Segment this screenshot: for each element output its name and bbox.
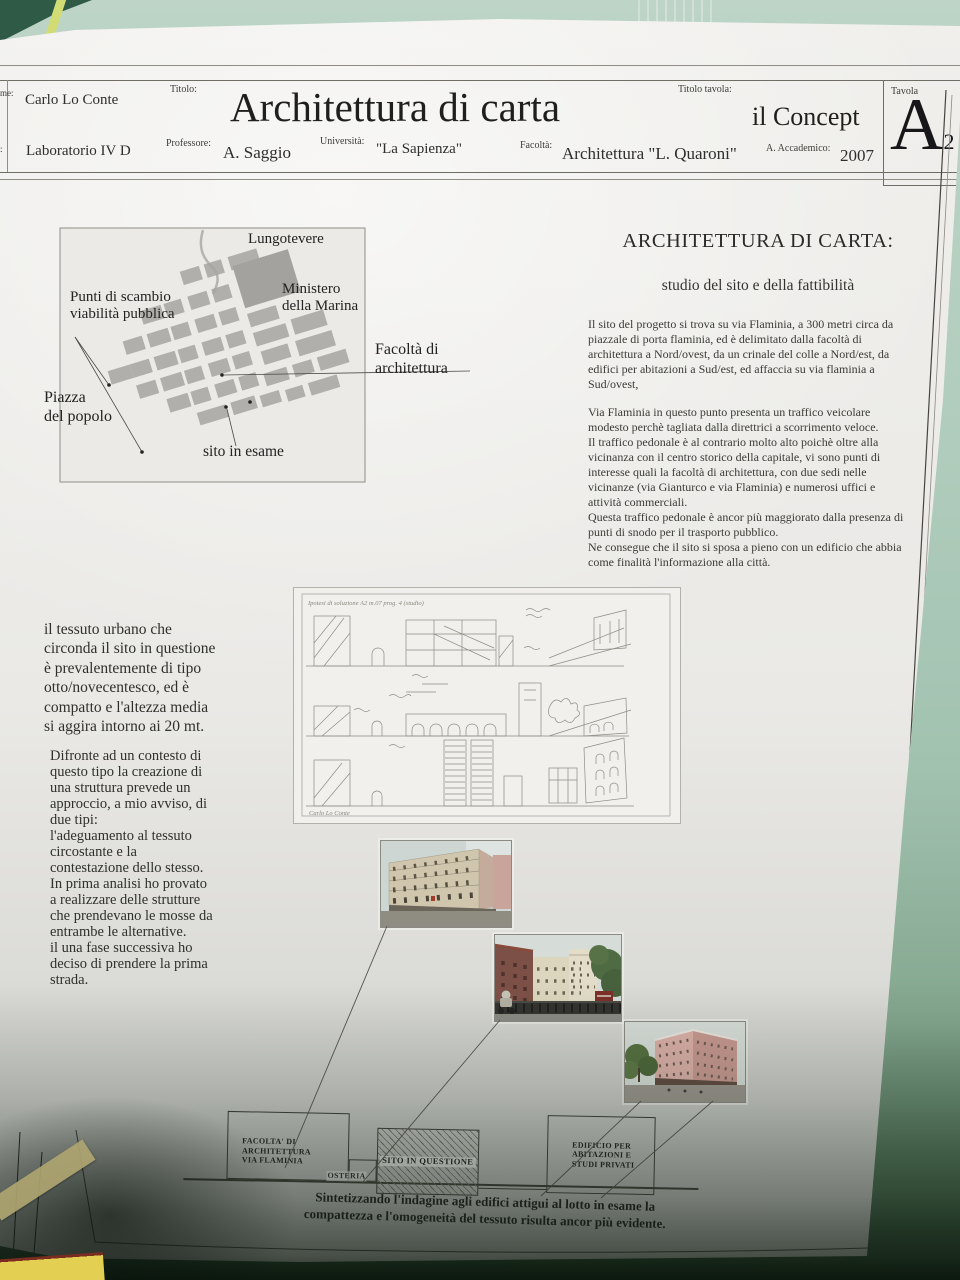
map-label-punti-di-scambio: Punti di scambio viabilità pubblica xyxy=(70,289,175,323)
header-bottom-border-2 xyxy=(0,179,960,180)
tavola-letter: A2 xyxy=(890,88,954,179)
poster-sheet: me: Carlo Lo Conte Titolo: Architettura … xyxy=(0,0,960,1280)
facolta-label: Facoltà: xyxy=(520,140,552,151)
tavola-subscript: 2 xyxy=(943,129,954,154)
diagram-box-edificio: EDIFICIO PER ABITAZIONI E STUDI PRIVATI xyxy=(546,1115,655,1195)
titolo-label: Titolo: xyxy=(170,84,197,95)
sketch-title-annotation: Ipotesi di soluzione A2 m.07 prog. 4 (st… xyxy=(307,600,424,607)
photo-facolta-facade xyxy=(380,840,512,928)
paragraph-sito: Il sito del progetto si trova su via Fla… xyxy=(588,317,938,392)
header-bottom-border xyxy=(0,172,960,173)
map-label-sito-in-esame: sito in esame xyxy=(203,443,284,460)
poster-title: Architettura di carta xyxy=(200,83,590,131)
map-label-ministero: Ministero della Marina xyxy=(282,281,358,315)
cutoff-name-label: me: xyxy=(0,88,14,98)
facolta-value: Architettura "L. Quaroni" xyxy=(562,144,737,164)
author-name: Carlo Lo Conte xyxy=(25,92,118,109)
diagram-step-line xyxy=(478,1188,546,1190)
universita-label: Università: xyxy=(320,136,364,147)
professore-value: A. Saggio xyxy=(223,143,291,163)
paragraph-traffico: Via Flaminia in questo punto presenta un… xyxy=(588,405,938,510)
tavola-cell-bottom xyxy=(883,185,960,186)
sketch-signature: Carlo Lo Conte xyxy=(309,810,350,817)
lab-name: Laboratorio IV D xyxy=(26,143,131,160)
paragraph-conclusione: Questa traffico pedonale è ancor più mag… xyxy=(588,510,938,570)
anno-value: 2007 xyxy=(840,146,874,166)
tavola-cell-divider xyxy=(883,80,884,186)
section-subheading: studio del sito e della fattibilità xyxy=(588,277,928,295)
diagram-label-osteria: OSTERIA xyxy=(326,1171,366,1181)
top-rule xyxy=(0,65,960,66)
section-heading: ARCHITETTURA DI CARTA: xyxy=(588,230,928,253)
map-label-piazza-del-popolo: Piazza del popolo xyxy=(44,388,112,426)
photo-via-flaminia-street xyxy=(494,934,622,1022)
photographed-poster-scene: me: Carlo Lo Conte Titolo: Architettura … xyxy=(0,0,960,1280)
header-top-border xyxy=(0,80,960,81)
sketch-drawing: Ipotesi di soluzione A2 m.07 prog. 4 (st… xyxy=(294,588,680,823)
universita-value: "La Sapienza" xyxy=(376,141,462,158)
titolo-tavola-label: Titolo tavola: xyxy=(678,84,732,95)
title-block: me: Carlo Lo Conte Titolo: Architettura … xyxy=(0,80,960,186)
photo-edificio-abitazioni xyxy=(624,1021,746,1103)
diagram-box-sito-in-questione: SITO IN QUESTIONE xyxy=(376,1128,479,1196)
left-text-block-contesto: Difronte ad un contesto di questo tipo l… xyxy=(50,748,318,988)
site-map-figure: Lungotevere Ministero della Marina Punti… xyxy=(40,225,480,500)
map-label-lungotevere: Lungotevere xyxy=(248,231,324,248)
sketch-panel: Ipotesi di soluzione A2 m.07 prog. 4 (st… xyxy=(293,587,681,824)
anno-label: A. Accademico: xyxy=(766,143,830,154)
left-text-block-tessuto: il tessuto urbano che circonda il sito i… xyxy=(44,620,306,736)
professore-label: Professore: xyxy=(166,138,211,149)
cutoff-row2-label: : xyxy=(0,144,3,154)
titolo-tavola-value: il Concept xyxy=(752,102,860,132)
map-label-facolta-di-architettura: Facoltà di architettura xyxy=(375,340,448,378)
right-text-column: ARCHITETTURA DI CARTA: studio del sito e… xyxy=(588,230,938,570)
